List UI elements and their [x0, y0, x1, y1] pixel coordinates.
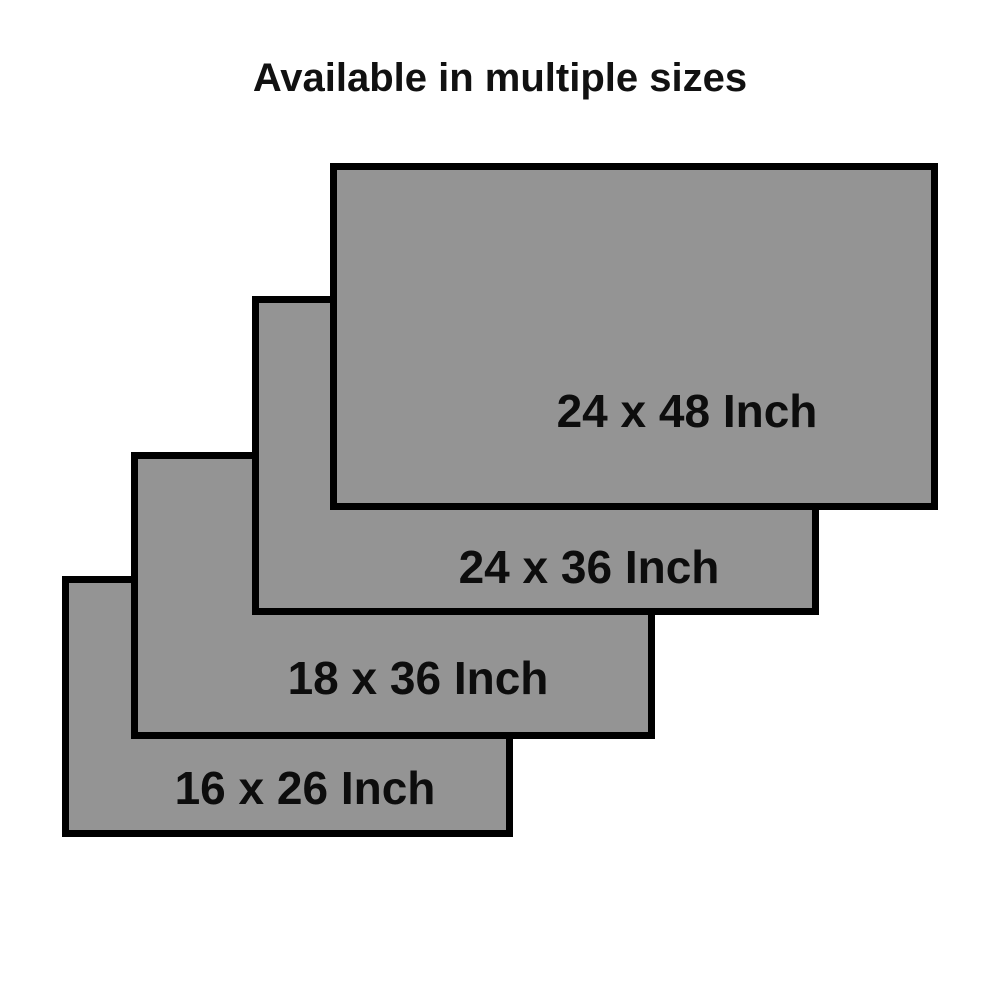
size-chart: Available in multiple sizes 24 x 48 Inch…: [0, 0, 1000, 1000]
size-label-24x48: 24 x 48 Inch: [557, 388, 818, 434]
page-title: Available in multiple sizes: [0, 56, 1000, 101]
size-label-24x36: 24 x 36 Inch: [459, 544, 720, 590]
size-panel-24x48: 24 x 48 Inch: [330, 163, 938, 510]
size-label-16x26: 16 x 26 Inch: [175, 765, 436, 811]
size-label-18x36: 18 x 36 Inch: [288, 655, 549, 701]
